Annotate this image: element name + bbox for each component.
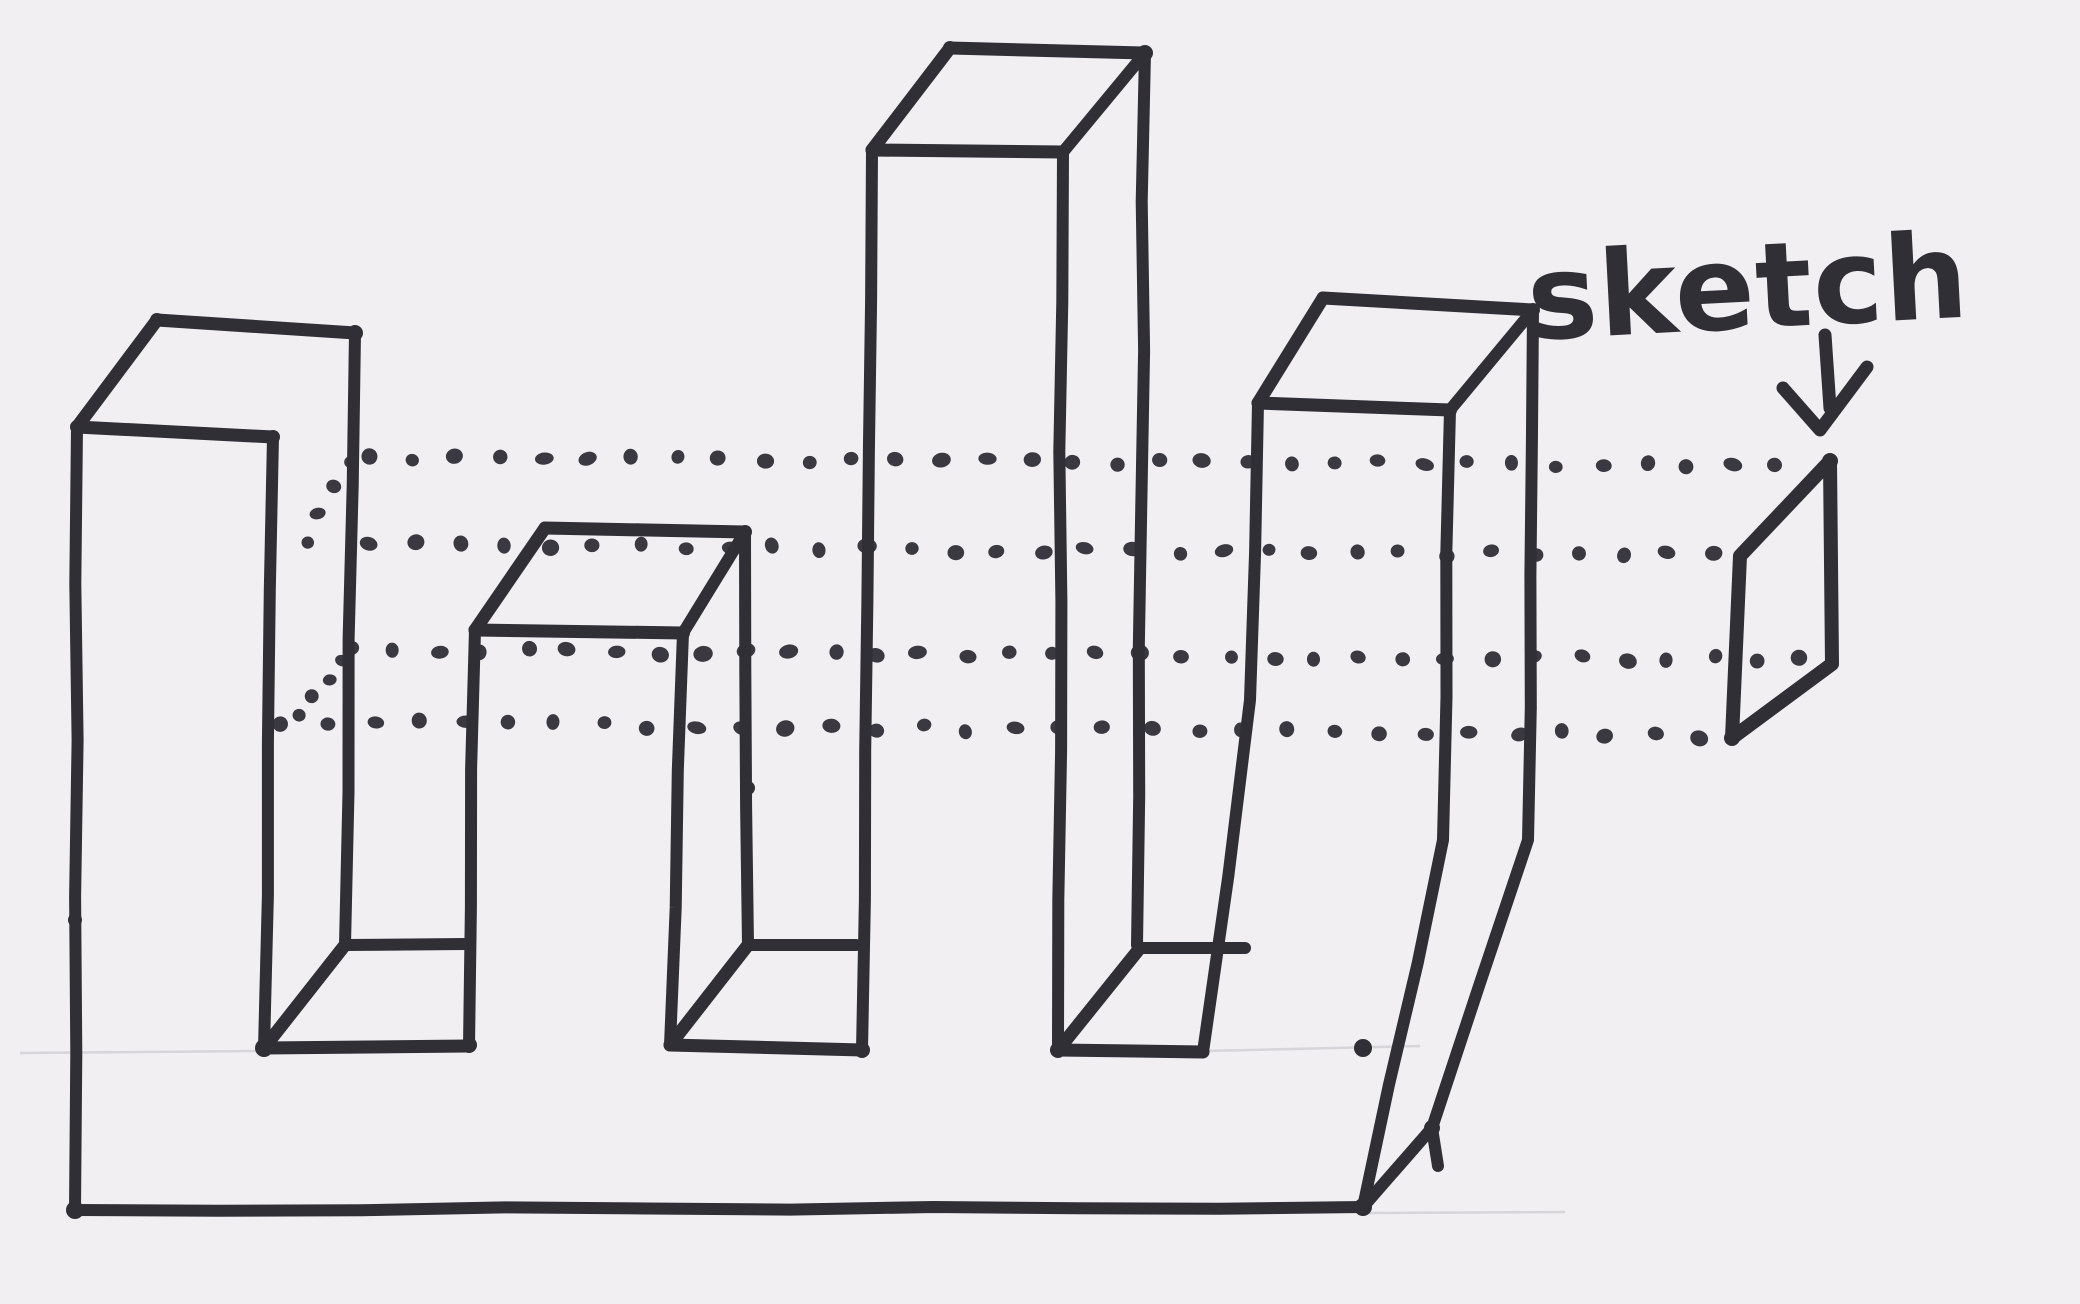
scanned-paper-page: sketch [0,0,2080,1304]
col2-front-top-edge [475,630,683,633]
col2-top-back-edge [545,528,745,532]
col3-back-right-edge [1137,53,1145,945]
ink-blob-11 [741,781,755,795]
ink-blob-10 [738,525,752,539]
ink-blob-18 [1354,1198,1372,1216]
ink-blob-19 [1443,403,1457,417]
ink-blob-13 [943,41,957,55]
ink-blob-6 [347,325,363,341]
notch1-front-bottom-edge [264,1046,469,1048]
sketch-label: sketch [1524,207,1973,368]
ink-blob-21 [1424,1120,1440,1136]
base-front-bottom-edge [75,1207,1363,1211]
col2-front-left-edge [469,630,475,1046]
ink-blob-17 [1354,1039,1372,1057]
ink-blob-7 [255,1039,273,1057]
col2-back-right-edge [745,532,748,945]
hand-drawn-extrude-diagram: sketch [0,0,2080,1304]
ink-blob-16 [1133,941,1147,955]
ink-blob-12 [854,1042,870,1058]
ink-blob-5 [266,430,280,444]
col1-front-right-edge [264,437,273,1048]
pencil-line-3 [1368,1212,1565,1213]
ink-blob-9 [676,626,690,640]
notch3-front-bottom-edge [1058,1050,1203,1052]
ink-blob-15 [1050,1042,1066,1058]
col4-front-top-edge [1258,403,1450,410]
ink-blob-8 [461,1037,477,1053]
ink-blob-3 [70,420,84,434]
notch1-back-bottom-edge [345,944,466,945]
ink-blob-4 [150,313,164,327]
ink-blob-1 [68,913,82,927]
col1-front-left-edge [75,427,78,1210]
ink-blob-2 [66,1201,84,1219]
ink-blob-14 [1137,45,1153,61]
col3-top-back-edge [950,48,1145,53]
col3-front-right-edge [1058,152,1063,1050]
col3-front-top-edge [872,150,1063,152]
notch2-front-bottom-edge [670,1045,862,1050]
